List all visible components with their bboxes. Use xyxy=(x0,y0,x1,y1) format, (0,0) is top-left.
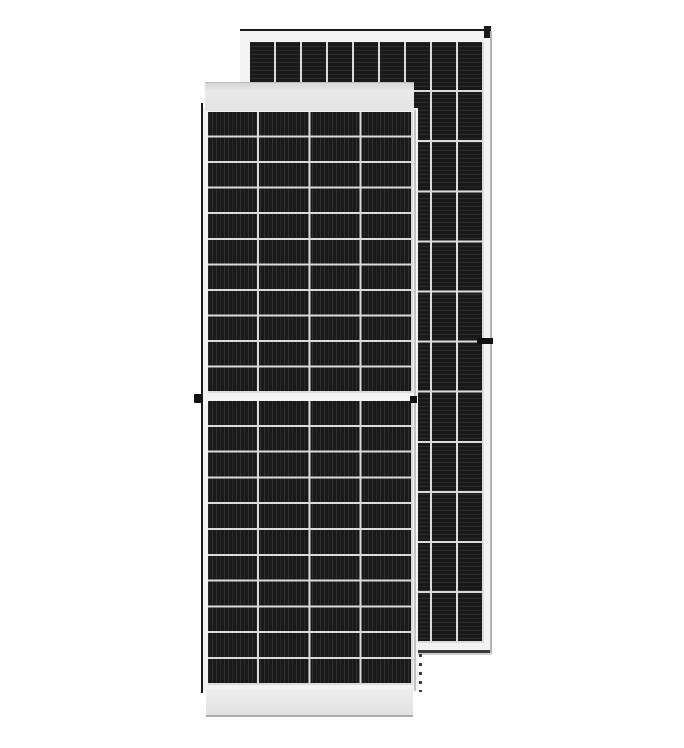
rear-panel-top-edge xyxy=(240,29,490,31)
front-panel-grounding-clip-left-icon xyxy=(194,394,202,403)
solar-panels-product-photo xyxy=(0,0,684,748)
front-panel-top-frame-band xyxy=(205,82,414,111)
front-panel-cells-lower-half xyxy=(208,401,413,685)
front-panel-grounding-clip-right-icon xyxy=(410,396,417,403)
front-panel-cells-upper-half xyxy=(208,112,413,393)
front-panel-bottom-frame-band xyxy=(206,689,413,717)
rear-panel-grounding-clip-icon xyxy=(477,338,493,344)
frame-serrated-shadow xyxy=(419,654,422,692)
